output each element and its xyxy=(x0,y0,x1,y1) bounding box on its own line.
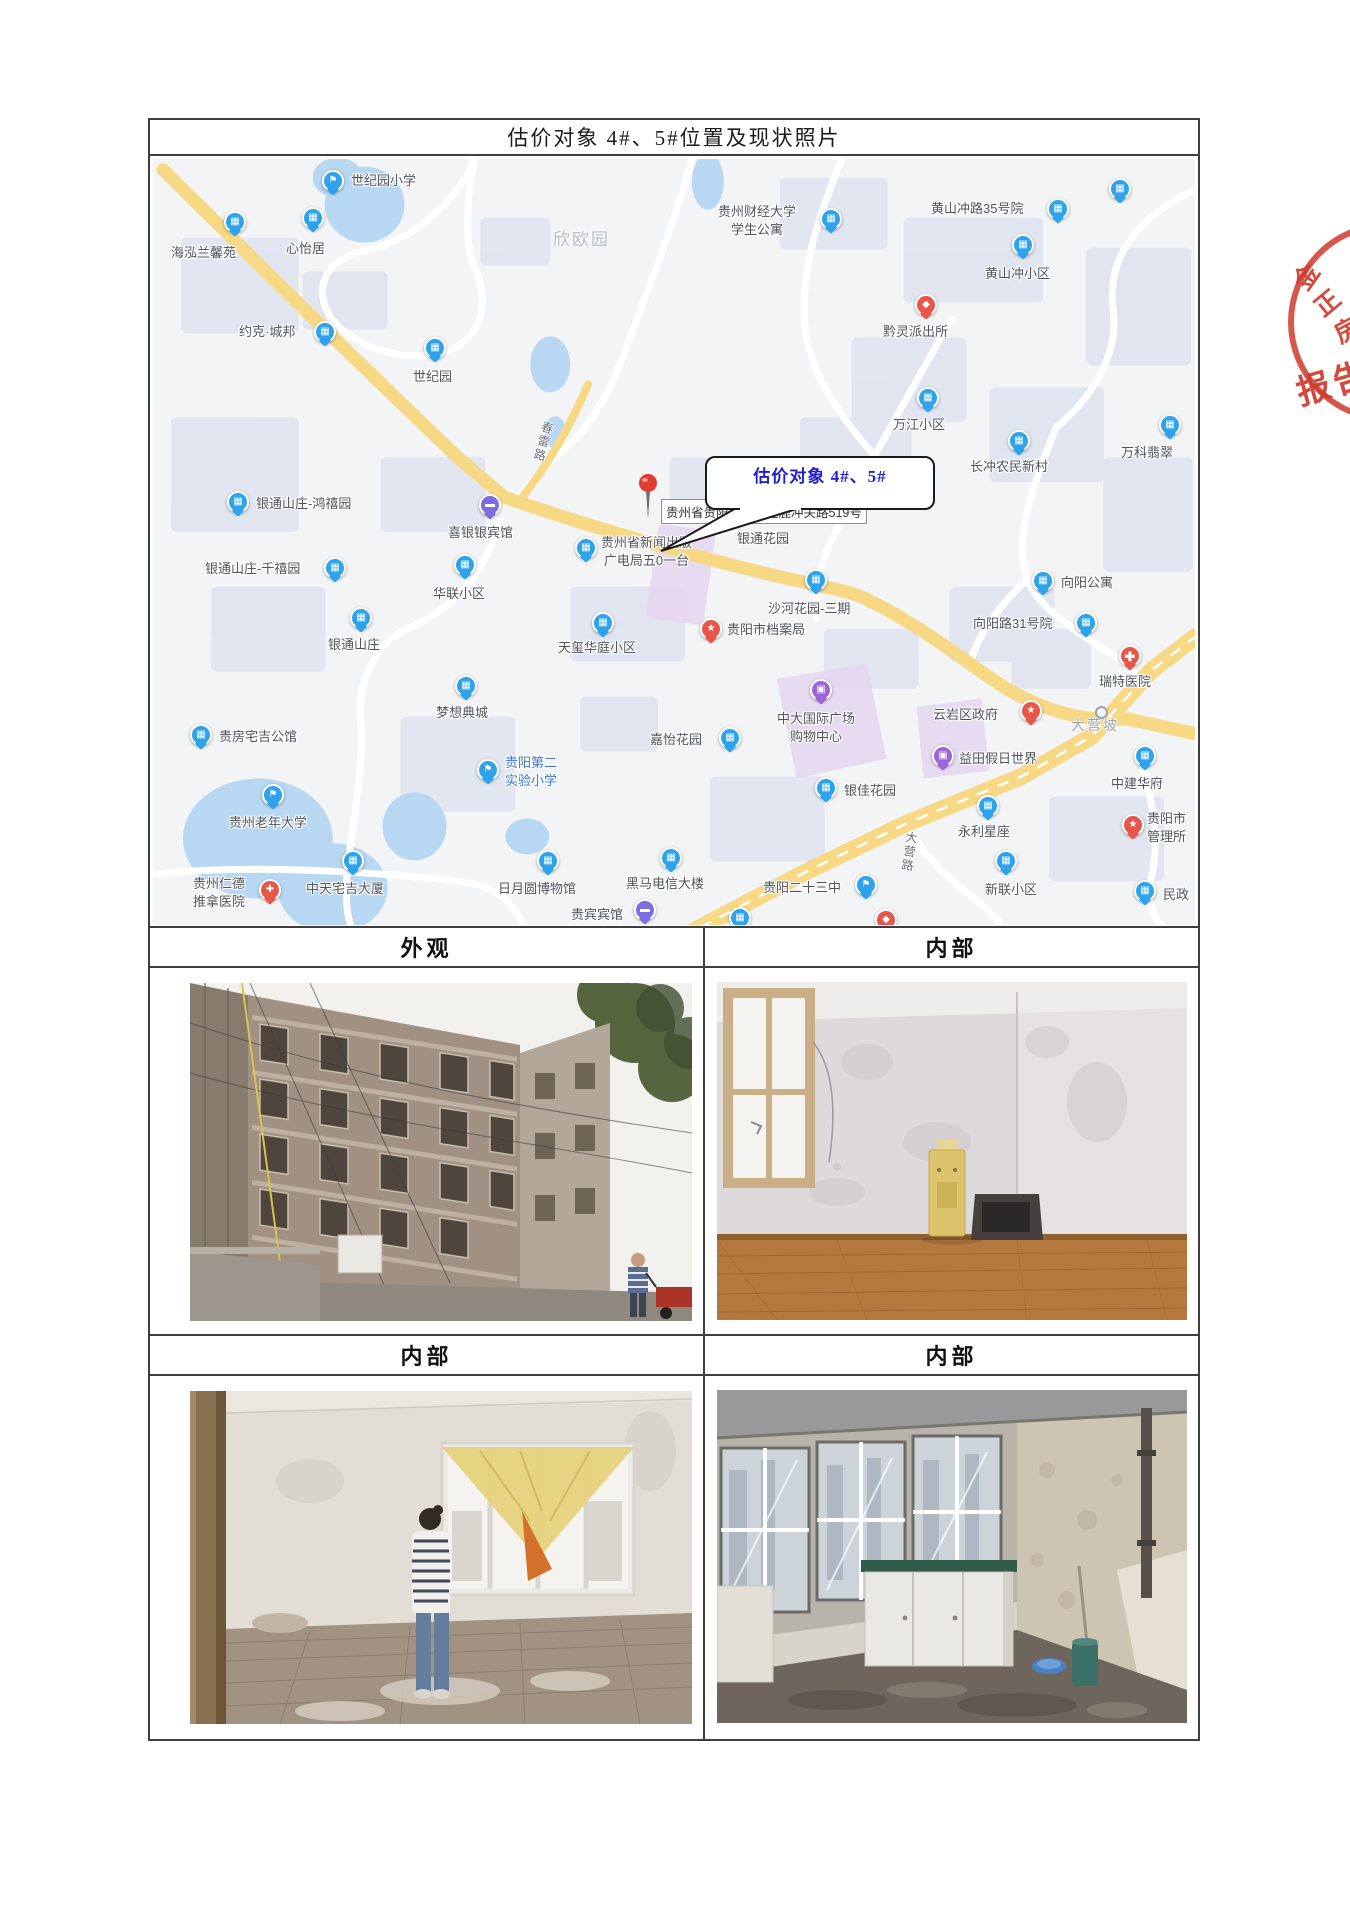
map-label-line: 中建华府 xyxy=(1111,775,1163,793)
shopping-glyph-icon: ▣ xyxy=(816,685,825,695)
map-pin-building-icon: ▦ xyxy=(660,847,682,869)
document-page: 估价对象 4#、5#位置及现状照片 xyxy=(0,0,1350,1909)
map-label: 贵阳市管理所 xyxy=(1147,810,1186,846)
road-label: 春雷路 xyxy=(530,420,557,465)
map-pin-school-icon: ⚑ xyxy=(262,784,284,806)
map-label: 贵阳第二实验小学 xyxy=(505,754,557,790)
map-label-line: 实验小学 xyxy=(505,772,557,790)
wall-pipe xyxy=(1141,1408,1152,1598)
map-pin-star-icon: ★ xyxy=(700,618,722,640)
building-glyph-icon: ▦ xyxy=(581,543,590,553)
map-label-line: 长冲农民新村 xyxy=(970,458,1048,476)
map-label-line: 黄山冲小区 xyxy=(985,265,1050,283)
building-glyph-icon: ▦ xyxy=(1014,436,1023,446)
map-label-line: 贵阳市 xyxy=(1147,810,1186,828)
building-glyph-icon: ▦ xyxy=(348,856,357,866)
school-glyph-icon: ⚑ xyxy=(484,765,493,775)
map-pin-building-icon: ▦ xyxy=(592,612,614,634)
building-glyph-icon: ▦ xyxy=(430,343,439,353)
building-glyph-icon: ▦ xyxy=(1038,576,1047,586)
map-pin-building-icon: ▦ xyxy=(1159,414,1181,436)
map-label: 贵州老年大学 xyxy=(229,814,307,832)
building-glyph-icon: ▦ xyxy=(330,563,339,573)
star-glyph-icon: ★ xyxy=(1129,820,1138,830)
hospital-glyph-icon: ✚ xyxy=(266,885,274,895)
building-glyph-icon: ▦ xyxy=(1081,618,1090,628)
building-glyph-icon: ▦ xyxy=(1140,751,1149,761)
map-pin-building-icon: ▦ xyxy=(1134,880,1156,902)
building-glyph-icon: ▦ xyxy=(1001,856,1010,866)
building-glyph-icon: ▦ xyxy=(983,801,992,811)
map-label-line: 向阳公寓 xyxy=(1061,574,1113,592)
map-label-line: 世纪园小学 xyxy=(351,172,416,190)
header-interior-1: 内部 xyxy=(705,928,1198,966)
map-pin-building-icon: ▦ xyxy=(314,321,336,343)
photo-cell-exterior xyxy=(150,968,705,1334)
map-pin-building-icon: ▦ xyxy=(917,387,939,409)
building-glyph-icon: ▦ xyxy=(230,217,239,227)
map-pin-building-icon: ▦ xyxy=(537,850,559,872)
map-pin-building-icon: ▦ xyxy=(820,208,842,230)
building-glyph-icon: ▦ xyxy=(308,213,317,223)
map-pin-building-icon: ▦ xyxy=(1109,178,1131,200)
map-pin-hotel-icon: ▬ xyxy=(634,899,656,921)
building-glyph-icon: ▦ xyxy=(811,575,820,585)
building-glyph-icon: ▦ xyxy=(461,681,470,691)
building-glyph-icon: ▦ xyxy=(1018,240,1027,250)
map-label: 长冲农民新村 xyxy=(970,458,1048,476)
police-glyph-icon: ◆ xyxy=(922,300,930,310)
map-label: 益田假日世界 xyxy=(959,750,1037,768)
map-pin-hotel-icon: ▬ xyxy=(479,494,501,516)
map-label: 贵阳二十三中 xyxy=(763,879,841,897)
map-pin-star-icon: ★ xyxy=(1020,700,1042,722)
map-pin-building-icon: ▦ xyxy=(324,557,346,579)
map-pin-building-icon: ▦ xyxy=(350,607,372,629)
map-label-line: 学生公寓 xyxy=(731,221,783,239)
school-glyph-icon: ⚑ xyxy=(269,790,278,800)
building-glyph-icon: ▦ xyxy=(543,856,552,866)
map-label-line: 瑞特医院 xyxy=(1099,673,1151,691)
map-label: 云岩区政府 xyxy=(933,706,998,724)
building-glyph-icon: ▦ xyxy=(233,497,242,507)
map-label: 世纪园小学 xyxy=(351,172,416,190)
water-dispenser xyxy=(929,1140,965,1236)
map-pin-building-icon: ▦ xyxy=(302,207,324,229)
building-glyph-icon: ▦ xyxy=(598,618,607,628)
map-pin-building-icon: ▦ xyxy=(805,569,827,591)
building-glyph-icon: ▦ xyxy=(320,327,329,337)
map-label-line: 银通山庄-鸿禧园 xyxy=(256,495,351,513)
map-label-line: 贵阳二十三中 xyxy=(763,879,841,897)
map-pin-building-icon: ▦ xyxy=(995,850,1017,872)
map-label-line: 向阳路31号院 xyxy=(973,615,1052,633)
map-label: 贵州仁德推拿医院 xyxy=(193,875,245,911)
photo-table: 估价对象 4#、5#位置及现状照片 xyxy=(148,118,1200,1741)
map-label: 贵宾宾馆 xyxy=(571,906,623,924)
area-label: 大营坡 xyxy=(1071,715,1119,735)
police-glyph-icon: ◆ xyxy=(882,915,890,925)
map-label-line: 黄山冲路35号院 xyxy=(931,200,1023,218)
building-glyph-icon: ▦ xyxy=(196,730,205,740)
map-label-line: 嘉怡花园 xyxy=(650,731,702,749)
header-interior-3: 内部 xyxy=(705,1336,1198,1374)
star-glyph-icon: ★ xyxy=(1027,706,1036,716)
map-label: 中大国际广场购物中心 xyxy=(777,710,855,746)
map-pin-building-icon: ▦ xyxy=(815,777,837,799)
map-pin-building-icon: ▦ xyxy=(227,491,249,513)
map-pin-building-icon: ▦ xyxy=(424,337,446,359)
map-pin-school-icon: ⚑ xyxy=(855,874,877,896)
map-label-line: 海泓兰馨苑 xyxy=(171,244,236,262)
map-label-line: 贵州仁德 xyxy=(193,875,245,893)
map-pin-building-icon: ▦ xyxy=(190,724,212,746)
map-label-line: 心怡居 xyxy=(286,240,325,258)
map-label-line: 银通山庄-千禧园 xyxy=(205,560,300,578)
map-label: 日月圆博物馆 xyxy=(498,880,576,898)
map-pin-building-icon: ▦ xyxy=(224,211,246,233)
map-label-line: 世纪园 xyxy=(413,368,452,386)
map-pin-building-icon: ▦ xyxy=(1134,745,1156,767)
map-label: 中天宅吉大厦 xyxy=(306,880,384,898)
map-label-line: 新联小区 xyxy=(985,881,1037,899)
map-pin-hospital-icon: ✚ xyxy=(259,879,281,901)
map-label-line: 益田假日世界 xyxy=(959,750,1037,768)
map-pin-building-icon: ▦ xyxy=(1075,612,1097,634)
building-glyph-icon: ▦ xyxy=(1140,886,1149,896)
map-label: 贵州财经大学学生公寓 xyxy=(718,203,796,239)
map-label: 民政 xyxy=(1163,886,1189,904)
map-label-line: 黔灵派出所 xyxy=(883,323,948,341)
shopping-glyph-icon: ▣ xyxy=(938,751,947,761)
map-label: 万科翡翠 xyxy=(1121,444,1173,462)
star-glyph-icon: ★ xyxy=(707,624,716,634)
photo-cell-interior-3 xyxy=(705,1376,1198,1739)
building-glyph-icon: ▦ xyxy=(735,913,744,923)
map-label-line: 华联小区 xyxy=(433,585,485,603)
map-label-line: 约克·城邦 xyxy=(239,323,295,341)
map-label-line: 万江小区 xyxy=(893,416,945,434)
map-label-line: 黑马电信大楼 xyxy=(626,875,704,893)
map-pin-shopping-icon: ▣ xyxy=(932,745,954,767)
map-label-line: 万科翡翠 xyxy=(1121,444,1173,462)
map-pin-cross-icon: ✚ xyxy=(1119,645,1141,667)
map-label-line: 贵宾宾馆 xyxy=(571,906,623,924)
map-pin-building-icon: ▦ xyxy=(729,907,751,925)
map-pin-building-icon: ▦ xyxy=(1012,234,1034,256)
map-pin-building-icon: ▦ xyxy=(455,675,477,697)
map-label: 银佳花园 xyxy=(844,782,896,800)
callout-label: 估价对象 4#、5# xyxy=(706,462,934,487)
map-pin-police-icon: ◆ xyxy=(875,909,897,925)
map-label: 黔灵派出所 xyxy=(883,323,948,341)
map-label: 黑马电信大楼 xyxy=(626,875,704,893)
map-label-line: 中大国际广场 xyxy=(777,710,855,728)
building-glyph-icon: ▦ xyxy=(460,560,469,570)
area-label: 欣欧园 xyxy=(553,225,610,250)
map-label-line: 管理所 xyxy=(1147,828,1186,846)
side-table xyxy=(717,1586,773,1682)
building-glyph-icon: ▦ xyxy=(666,853,675,863)
map-label-line: 贵州财经大学 xyxy=(718,203,796,221)
map-label-line: 贵州老年大学 xyxy=(229,814,307,832)
photo-interior-window-person xyxy=(190,1391,692,1724)
header-row-1: 外观 内部 xyxy=(150,928,1198,968)
map-label: 喜银银宾馆 xyxy=(448,524,513,542)
map-label-line: 贵房宅吉公馆 xyxy=(219,728,297,746)
cabinet xyxy=(861,1560,1017,1666)
map-label: 天玺华庭小区 xyxy=(558,639,636,657)
cross-glyph-icon: ✚ xyxy=(1125,650,1136,663)
map-label: 银通山庄 xyxy=(328,636,380,654)
page-title: 估价对象 4#、5#位置及现状照片 xyxy=(150,120,1198,156)
person-figure xyxy=(412,1505,450,1699)
map-label-line: 沙河花园-三期 xyxy=(768,600,850,618)
dayingpo-junction-ring xyxy=(1095,706,1108,719)
map-label: 贵房宅吉公馆 xyxy=(219,728,297,746)
hotel-glyph-icon: ▬ xyxy=(640,905,650,915)
map-pin-police-icon: ◆ xyxy=(915,294,937,316)
building-glyph-icon: ▦ xyxy=(725,733,734,743)
map-label: 瑞特医院 xyxy=(1099,673,1151,691)
map-pin-building-icon: ▦ xyxy=(1008,430,1030,452)
map-label: 华联小区 xyxy=(433,585,485,603)
location-map: ⚑世纪园小学▦海泓兰馨苑▦心怡居▦约克·城邦▦世纪园▦贵州财经大学学生公寓▦黄山… xyxy=(153,159,1195,925)
building-glyph-icon: ▦ xyxy=(821,783,830,793)
map-pin-building-icon: ▦ xyxy=(342,850,364,872)
header-row-2: 内部 内部 xyxy=(150,1336,1198,1376)
map-label-line: 民政 xyxy=(1163,886,1189,904)
map-label-line: 云岩区政府 xyxy=(933,706,998,724)
map-pin-building-icon: ▦ xyxy=(1047,198,1069,220)
map-pin-shopping-icon: ▣ xyxy=(810,679,832,701)
map-pin-building-icon: ▦ xyxy=(454,554,476,576)
map-label: 嘉怡花园 xyxy=(650,731,702,749)
map-label: 向阳公寓 xyxy=(1061,574,1113,592)
map-label: 世纪园 xyxy=(413,368,452,386)
old-tv xyxy=(971,1194,1043,1240)
map-label: 银通山庄-鸿禧园 xyxy=(256,495,351,513)
map-label-line: 银佳花园 xyxy=(844,782,896,800)
building-glyph-icon: ▦ xyxy=(356,613,365,623)
photo-row-2 xyxy=(150,1376,1198,1739)
photo-interior-window-cabinet xyxy=(717,1390,1187,1723)
map-label-line: 永利星座 xyxy=(958,823,1010,841)
map-pin-school-icon: ⚑ xyxy=(322,170,344,192)
map-label-line: 贵阳第二 xyxy=(505,754,557,772)
map-label-line: 贵阳市档案局 xyxy=(727,621,805,639)
map-label: 黄山冲路35号院 xyxy=(931,200,1023,218)
hotel-glyph-icon: ▬ xyxy=(485,500,495,510)
road-label: 大营路 xyxy=(898,830,921,874)
header-interior-2: 内部 xyxy=(150,1336,705,1374)
map-label: 沙河花园-三期 xyxy=(768,600,850,618)
map-label-line: 推拿医院 xyxy=(193,893,245,911)
map-label: 新联小区 xyxy=(985,881,1037,899)
header-exterior: 外观 xyxy=(150,928,705,966)
map-label-line: 银通山庄 xyxy=(328,636,380,654)
building-glyph-icon: ▦ xyxy=(826,214,835,224)
map-label: 向阳路31号院 xyxy=(973,615,1052,633)
map-label: 贵阳市档案局 xyxy=(727,621,805,639)
map-pin-building-icon: ▦ xyxy=(719,727,741,749)
map-label: 银通山庄-千禧园 xyxy=(205,560,300,578)
school-glyph-icon: ⚑ xyxy=(862,880,871,890)
map-row: ⚑世纪园小学▦海泓兰馨苑▦心怡居▦约克·城邦▦世纪园▦贵州财经大学学生公寓▦黄山… xyxy=(150,156,1198,928)
photo-cell-interior-1 xyxy=(705,968,1198,1334)
map-label-line: 中天宅吉大厦 xyxy=(306,880,384,898)
building-glyph-icon: ▦ xyxy=(923,393,932,403)
photo-cell-interior-2 xyxy=(150,1376,705,1739)
photo-exterior-building xyxy=(190,983,692,1321)
map-label-line: 梦想典城 xyxy=(436,704,488,722)
map-label: 中建华府 xyxy=(1111,775,1163,793)
building-glyph-icon: ▦ xyxy=(1165,420,1174,430)
map-label: 海泓兰馨苑 xyxy=(171,244,236,262)
map-label: 永利星座 xyxy=(958,823,1010,841)
photo-row-1 xyxy=(150,968,1198,1336)
map-pin-building-icon: ▦ xyxy=(977,795,999,817)
map-pin-building-icon: ▦ xyxy=(1032,570,1054,592)
building-glyph-icon: ▦ xyxy=(1115,184,1124,194)
map-label: 约克·城邦 xyxy=(239,323,295,341)
photo-interior-tv-room xyxy=(717,982,1187,1320)
map-label: 梦想典城 xyxy=(436,704,488,722)
map-label: 黄山冲小区 xyxy=(985,265,1050,283)
map-label: 心怡居 xyxy=(286,240,325,258)
school-glyph-icon: ⚑ xyxy=(329,176,338,186)
map-label-line: 天玺华庭小区 xyxy=(558,639,636,657)
map-label-line: 购物中心 xyxy=(790,728,842,746)
map-label-line: 喜银银宾馆 xyxy=(448,524,513,542)
map-pin-star-icon: ★ xyxy=(1122,814,1144,836)
map-pin-school-icon: ⚑ xyxy=(477,759,499,781)
building-glyph-icon: ▦ xyxy=(1053,204,1062,214)
map-label-line: 日月圆博物馆 xyxy=(498,880,576,898)
map-label: 万江小区 xyxy=(893,416,945,434)
map-pin-building-icon: ▦ xyxy=(575,537,597,559)
